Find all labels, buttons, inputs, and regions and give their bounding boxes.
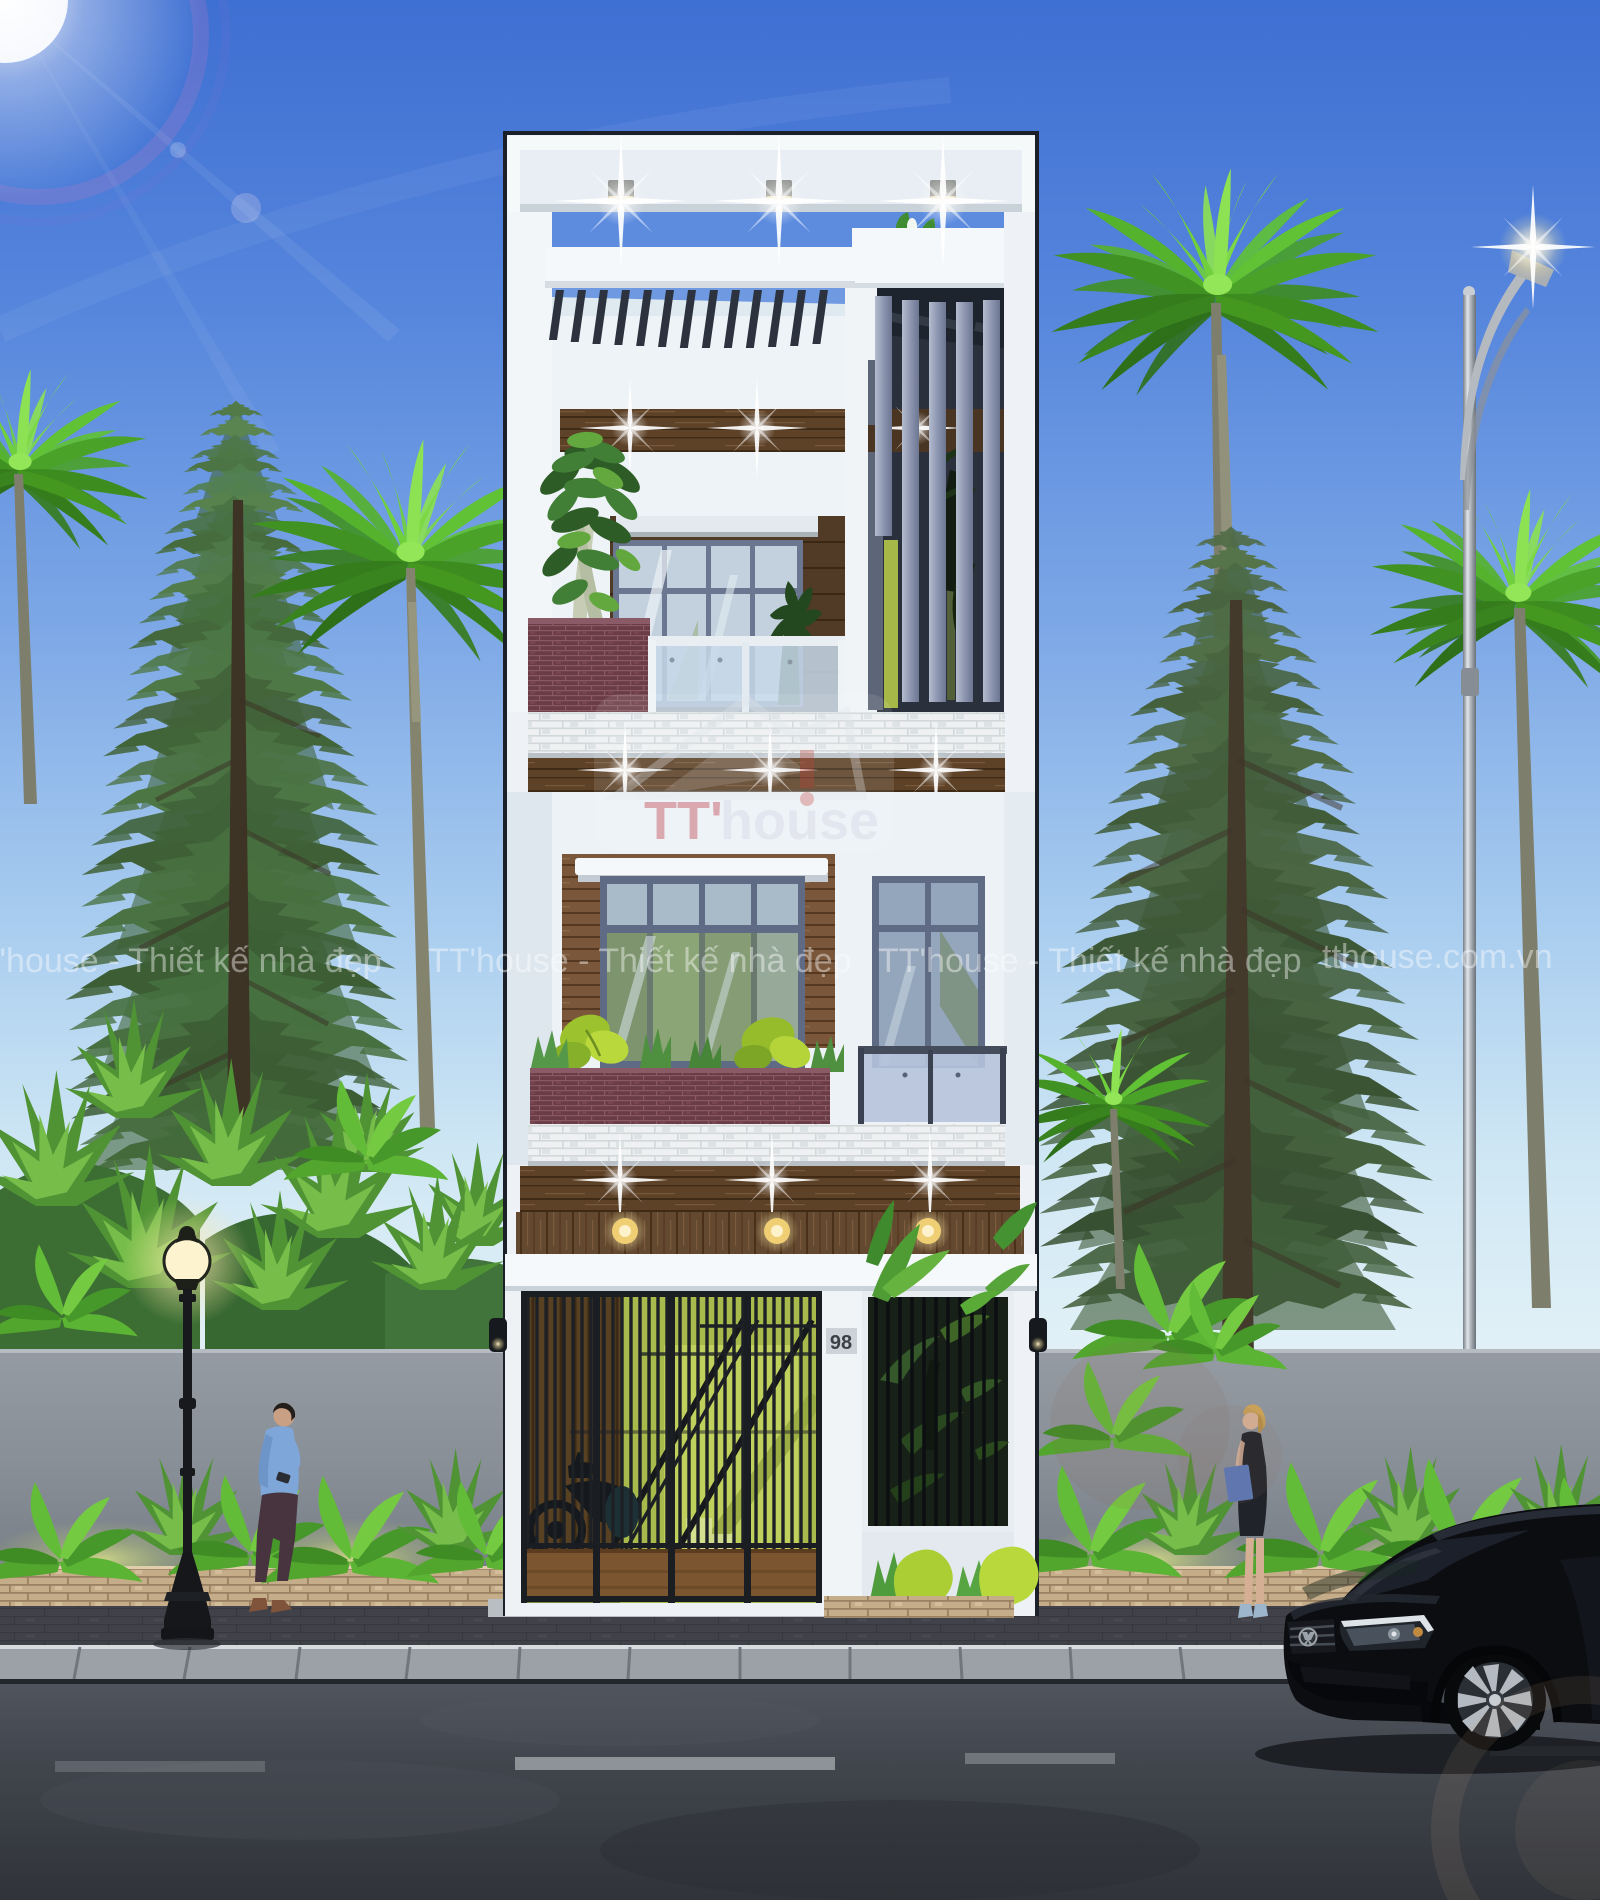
svg-text:TT'house - Thiết kế nhà đẹp: TT'house - Thiết kế nhà đẹp (428, 942, 852, 980)
svg-text:TT'house - Thiết kế nhà đẹp: TT'house - Thiết kế nhà đẹp (0, 942, 382, 980)
svg-text:TT': TT' (644, 791, 723, 851)
svg-text:house: house (720, 791, 879, 851)
svg-text:tthouse.com.vn: tthouse.com.vn (1322, 938, 1553, 976)
svg-text:TT'house - Thiết kế nhà đẹp: TT'house - Thiết kế nhà đẹp (878, 942, 1302, 980)
svg-text:98: 98 (830, 1332, 852, 1354)
